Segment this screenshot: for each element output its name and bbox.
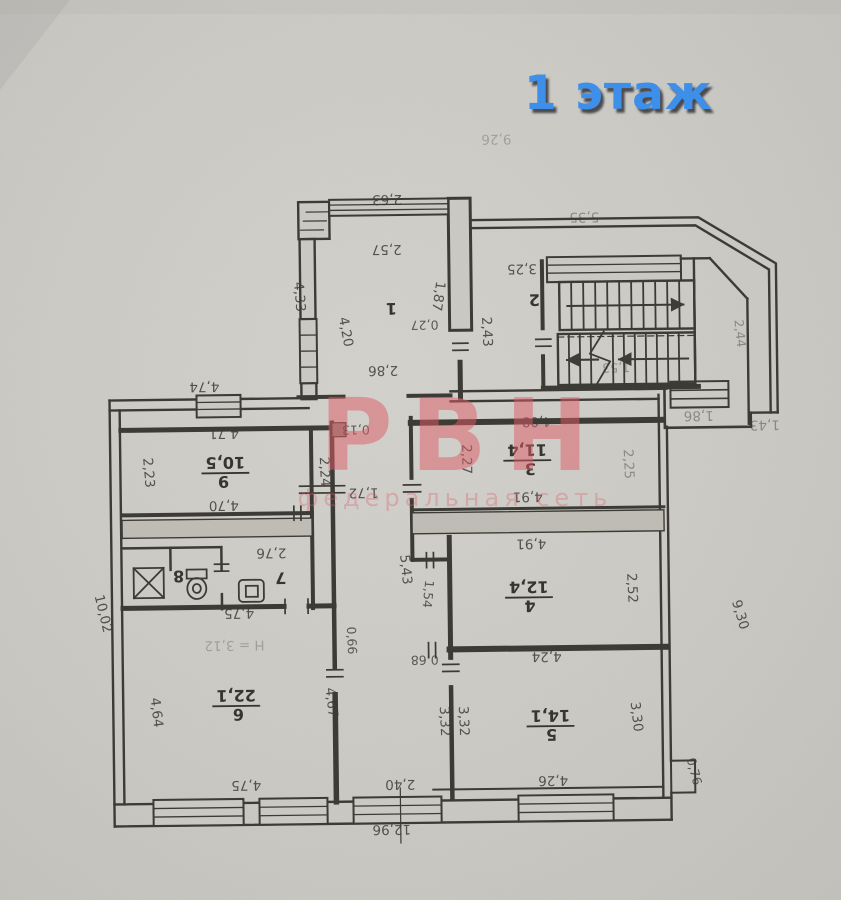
floor-title: 1 этаж — [524, 66, 744, 121]
floor-plan-drawing: 9,26 2,63 2,57 1,87 4,33 4,20 2,86 0,27 … — [0, 0, 841, 900]
paper-grain-overlay — [0, 0, 841, 900]
scanned-floor-plan-photo: 9,26 2,63 2,57 1,87 4,33 4,20 2,86 0,27 … — [0, 0, 841, 900]
